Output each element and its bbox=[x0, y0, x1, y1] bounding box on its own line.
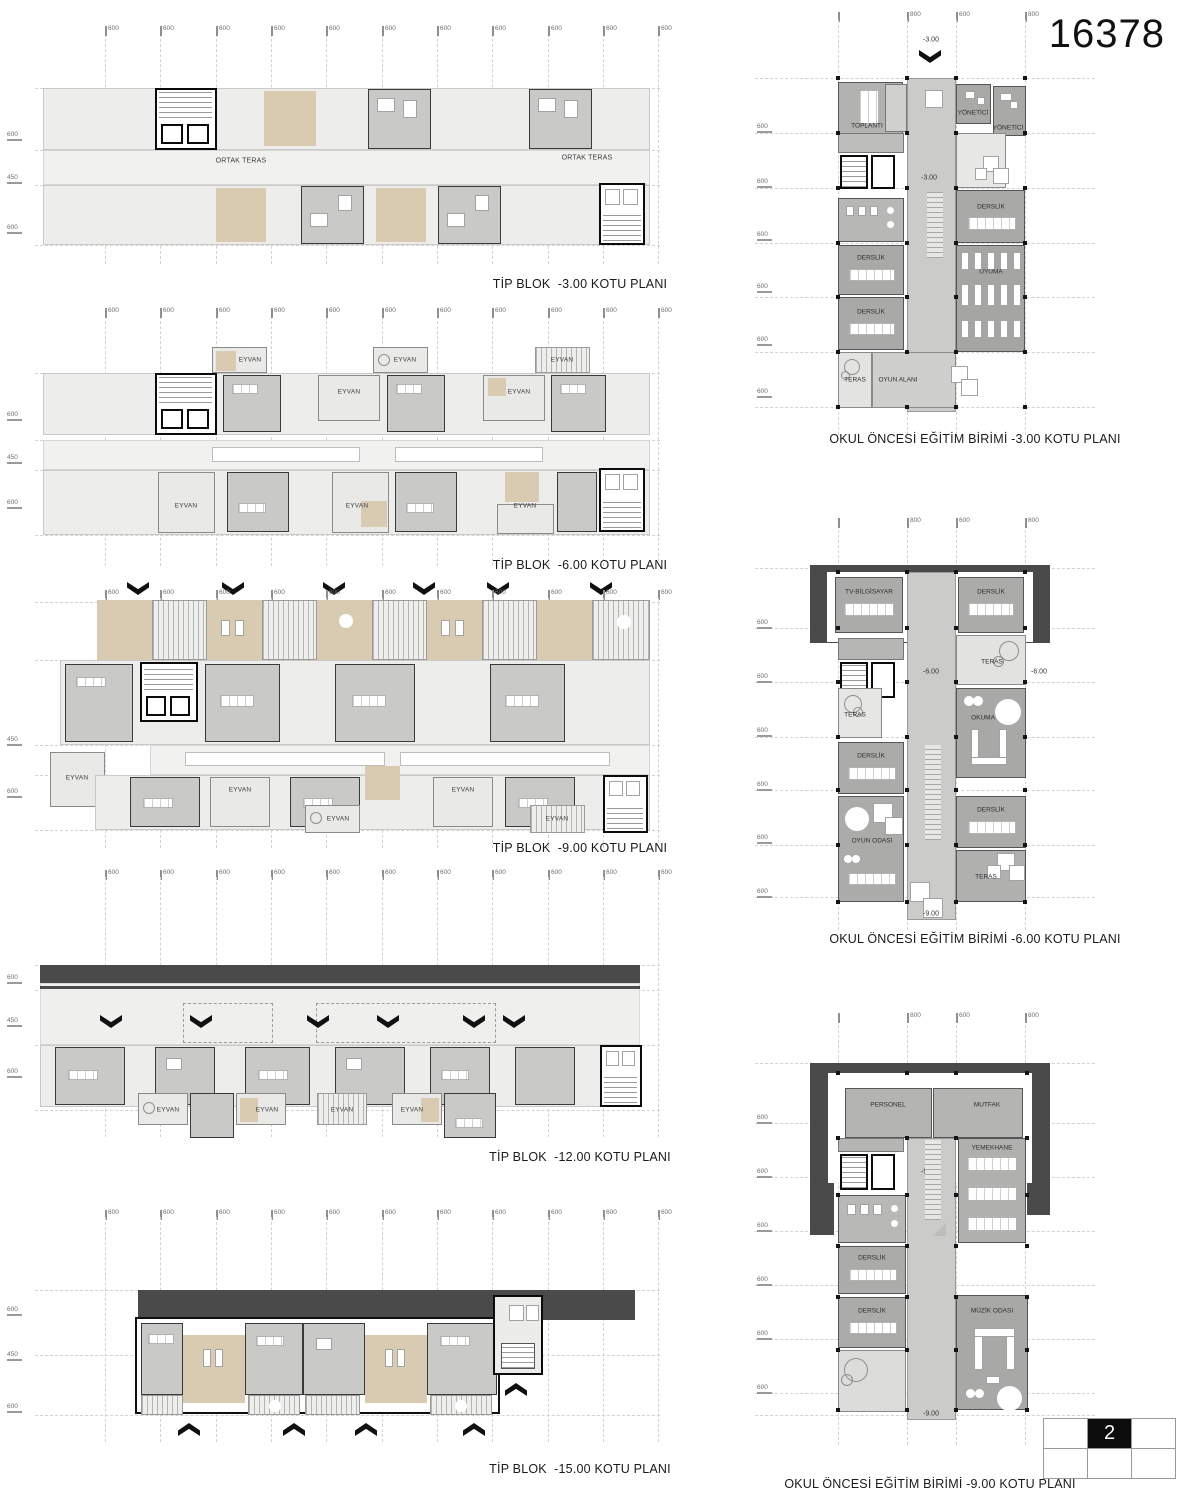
roof-terrace bbox=[97, 600, 152, 660]
dimension-label: 600 bbox=[606, 25, 617, 32]
plan-tip-blok-15: 600600600600600600600600600600600 600450… bbox=[35, 1205, 660, 1500]
dimension-label: 600 bbox=[163, 307, 174, 314]
dimension-tick bbox=[382, 26, 384, 36]
dimension-tick bbox=[492, 26, 494, 36]
elevator bbox=[161, 124, 183, 144]
dimension-label: 600 bbox=[219, 589, 230, 596]
column-marker bbox=[1023, 626, 1027, 630]
direction-arrow-up bbox=[355, 1423, 377, 1436]
column-marker bbox=[1023, 76, 1027, 80]
dimension-label: 600 bbox=[7, 224, 22, 234]
column-marker bbox=[905, 1244, 909, 1248]
page-index-cell bbox=[1043, 1448, 1088, 1479]
eyvan-room bbox=[483, 375, 545, 421]
column-marker bbox=[954, 626, 958, 630]
eyvan-room bbox=[318, 375, 380, 421]
dimension-label: 600 bbox=[551, 589, 562, 596]
side-dimensions: 600450600 bbox=[7, 865, 33, 1165]
plan-okul-3: 800600800 600600600600600600 -3.00 TOPLA… bbox=[755, 0, 1095, 470]
dimension-label: 600 bbox=[274, 25, 285, 32]
dimension-tick bbox=[160, 308, 162, 318]
terrace-band bbox=[43, 150, 650, 185]
column-marker bbox=[1023, 350, 1027, 354]
dimension-tick bbox=[437, 26, 439, 36]
roof-hatch bbox=[262, 600, 317, 660]
column-marker bbox=[1025, 1348, 1029, 1352]
column-marker bbox=[836, 1193, 840, 1197]
dimension-tick bbox=[548, 308, 550, 318]
dimension-label: 600 bbox=[329, 25, 340, 32]
roof-hatch bbox=[372, 600, 427, 660]
drawing-sheet: 16378 600600600600600600600600600600600 … bbox=[0, 0, 1191, 1500]
column-marker bbox=[905, 1348, 909, 1352]
column-marker bbox=[836, 626, 840, 630]
column-marker bbox=[1023, 186, 1027, 190]
dimension-row: 600600600600600600600600600600600 bbox=[35, 26, 660, 38]
column-marker bbox=[905, 735, 909, 739]
elevator bbox=[187, 124, 209, 144]
grid-line-horizontal bbox=[35, 535, 660, 536]
dimension-label: 600 bbox=[7, 788, 22, 798]
room-label: EYVAN bbox=[229, 787, 252, 794]
eyvan-room bbox=[210, 777, 270, 827]
unit-cluster bbox=[551, 375, 606, 432]
stair-core bbox=[599, 468, 645, 532]
column-marker bbox=[1023, 405, 1027, 409]
dimension-label: 600 bbox=[108, 307, 119, 314]
column-marker bbox=[954, 1071, 958, 1075]
dimension-tick bbox=[603, 26, 605, 36]
side-dimensions: 600450600 bbox=[7, 300, 33, 580]
grid-line-horizontal bbox=[35, 245, 660, 246]
column-marker bbox=[836, 405, 840, 409]
dimension-label: 450 bbox=[7, 1017, 22, 1027]
plan-title: OKUL ÖNCESİ EĞİTİM BİRİMİ -9.00 KOTU PLA… bbox=[784, 1477, 1075, 1491]
corridor-opening bbox=[400, 752, 610, 766]
plan-tip-blok-12: 600600600600600600600600600600600 600450… bbox=[35, 865, 660, 1165]
dimension-label: 600 bbox=[551, 25, 562, 32]
direction-arrow-down bbox=[190, 1015, 212, 1028]
column-marker bbox=[836, 241, 840, 245]
direction-arrow-down bbox=[463, 1015, 485, 1028]
column-marker bbox=[1023, 680, 1027, 684]
column-marker bbox=[1023, 570, 1027, 574]
direction-arrow-up bbox=[283, 1423, 305, 1436]
column-marker bbox=[905, 131, 909, 135]
column-marker bbox=[954, 680, 958, 684]
grid-line-vertical bbox=[658, 316, 659, 566]
stair-core bbox=[603, 775, 648, 833]
column-marker bbox=[836, 350, 840, 354]
dimension-label: 600 bbox=[606, 307, 617, 314]
unit-cluster bbox=[65, 664, 133, 742]
column-marker bbox=[836, 76, 840, 80]
column-marker bbox=[905, 788, 909, 792]
dimension-tick bbox=[658, 26, 660, 36]
column-marker bbox=[954, 131, 958, 135]
plan-title: OKUL ÖNCESİ EĞİTİM BİRİMİ -3.00 KOTU PLA… bbox=[829, 432, 1120, 446]
dimension-label: 600 bbox=[7, 1403, 22, 1413]
room-label: ORTAK TERAS bbox=[562, 155, 613, 162]
column-marker bbox=[954, 350, 958, 354]
column-marker bbox=[836, 295, 840, 299]
room-label: EYVAN bbox=[175, 503, 198, 510]
column-marker bbox=[905, 1193, 909, 1197]
unit-cluster bbox=[205, 664, 280, 742]
column-marker bbox=[836, 570, 840, 574]
dimension-tick bbox=[105, 26, 107, 36]
column-marker bbox=[905, 626, 909, 630]
page-index-cell-current: 2 bbox=[1087, 1418, 1132, 1449]
stair-core bbox=[155, 88, 217, 150]
side-dimensions: 600450600 bbox=[7, 1205, 33, 1500]
dimension-label: 450 bbox=[7, 736, 22, 746]
plan-title: TİP BLOK -9.00 KOTU PLANI bbox=[493, 841, 667, 855]
column-marker bbox=[836, 788, 840, 792]
room-label: EYVAN bbox=[394, 357, 417, 364]
stairs bbox=[159, 92, 212, 118]
room-label: EYVAN bbox=[452, 787, 475, 794]
column-marker bbox=[836, 1071, 840, 1075]
plan-title: TİP BLOK -15.00 KOTU PLANI bbox=[489, 1462, 671, 1476]
dimension-label: 600 bbox=[108, 25, 119, 32]
column-marker bbox=[905, 1071, 909, 1075]
unit-room bbox=[444, 1093, 496, 1138]
side-dimensions: 450600 bbox=[7, 580, 33, 880]
column-markers bbox=[755, 0, 1095, 470]
courtyard bbox=[216, 188, 266, 242]
grid-line-vertical bbox=[658, 598, 659, 848]
column-marker bbox=[954, 76, 958, 80]
page-index-cell bbox=[1131, 1448, 1176, 1479]
column-marker bbox=[905, 843, 909, 847]
room-label: EYVAN bbox=[66, 775, 89, 782]
room-label: EYVAN bbox=[338, 389, 361, 396]
room-label: EYVAN bbox=[157, 1107, 180, 1114]
eyvan-room bbox=[433, 777, 493, 827]
column-marker bbox=[954, 1244, 958, 1248]
grid-line-vertical bbox=[658, 34, 659, 264]
column-marker bbox=[954, 735, 958, 739]
column-marker bbox=[836, 1295, 840, 1299]
dimension-label: 600 bbox=[661, 1209, 672, 1216]
column-marker bbox=[954, 1408, 958, 1412]
unit-cluster bbox=[227, 472, 289, 532]
direction-arrow-up bbox=[178, 1423, 200, 1436]
column-marker bbox=[954, 900, 958, 904]
plan-tip-blok-3: 600600600600600600600600600600600 600450… bbox=[35, 20, 660, 285]
column-marker bbox=[836, 843, 840, 847]
dimension-tick bbox=[271, 308, 273, 318]
direction-arrow-down bbox=[377, 1015, 399, 1028]
plan-title: TİP BLOK -12.00 KOTU PLANI bbox=[489, 1150, 671, 1164]
dimension-label: 600 bbox=[661, 589, 672, 596]
column-marker bbox=[954, 1193, 958, 1197]
column-marker bbox=[1023, 131, 1027, 135]
unit-cluster bbox=[368, 89, 431, 149]
dimension-tick bbox=[271, 26, 273, 36]
dimension-label: 600 bbox=[440, 307, 451, 314]
dimension-tick bbox=[437, 308, 439, 318]
stair-core bbox=[600, 1045, 642, 1107]
column-marker bbox=[954, 241, 958, 245]
column-markers bbox=[755, 510, 1095, 950]
dimension-tick bbox=[658, 308, 660, 318]
dimension-tick bbox=[326, 308, 328, 318]
column-marker bbox=[954, 1136, 958, 1140]
dimension-label: 600 bbox=[385, 307, 396, 314]
column-marker bbox=[954, 1348, 958, 1352]
dimension-label: 600 bbox=[495, 307, 506, 314]
corridor-opening bbox=[185, 752, 385, 766]
dimension-label: 600 bbox=[274, 307, 285, 314]
column-marker bbox=[905, 900, 909, 904]
column-marker bbox=[836, 131, 840, 135]
column-marker bbox=[1023, 788, 1027, 792]
courtyard bbox=[264, 91, 316, 146]
room-label: EYVAN bbox=[346, 503, 369, 510]
room-label: EYVAN bbox=[514, 503, 537, 510]
column-marker bbox=[1023, 295, 1027, 299]
column-marker bbox=[1025, 1244, 1029, 1248]
column-marker bbox=[836, 1348, 840, 1352]
dimension-tick bbox=[548, 26, 550, 36]
column-marker bbox=[1025, 1071, 1029, 1075]
column-marker bbox=[905, 405, 909, 409]
column-marker bbox=[1023, 900, 1027, 904]
stair-core bbox=[155, 373, 217, 435]
column-marker bbox=[954, 405, 958, 409]
direction-arrow-down bbox=[100, 1015, 122, 1028]
dimension-label: 600 bbox=[495, 589, 506, 596]
corridor-opening bbox=[212, 447, 360, 462]
direction-arrow-down bbox=[503, 1015, 525, 1028]
roof-terrace bbox=[537, 600, 592, 660]
dimension-tick bbox=[492, 308, 494, 318]
room-label: EYVAN bbox=[551, 357, 574, 364]
column-marker bbox=[905, 680, 909, 684]
dimension-label: 600 bbox=[440, 589, 451, 596]
dimension-label: 600 bbox=[329, 589, 340, 596]
dimension-label: 600 bbox=[551, 307, 562, 314]
plan-tip-blok-9: 600600600600600600600600600600600 450600… bbox=[35, 580, 660, 880]
column-marker bbox=[905, 186, 909, 190]
dimension-tick bbox=[105, 308, 107, 318]
column-marker bbox=[1025, 1193, 1029, 1197]
column-marker bbox=[905, 350, 909, 354]
dimension-tick bbox=[216, 308, 218, 318]
dimension-label: 600 bbox=[108, 589, 119, 596]
dimension-tick bbox=[326, 26, 328, 36]
unit-cluster bbox=[515, 1047, 575, 1105]
stairs bbox=[603, 215, 641, 241]
column-marker bbox=[954, 788, 958, 792]
plan-title: TİP BLOK -6.00 KOTU PLANI bbox=[493, 558, 667, 572]
dimension-label: 600 bbox=[440, 25, 451, 32]
roof-hatch bbox=[152, 600, 207, 660]
dimension-label: 600 bbox=[661, 869, 672, 876]
dimension-label: 600 bbox=[274, 589, 285, 596]
page-index-cell bbox=[1043, 1418, 1088, 1449]
courtyard bbox=[365, 766, 400, 800]
column-marker bbox=[905, 1408, 909, 1412]
column-marker bbox=[836, 1136, 840, 1140]
column-marker bbox=[905, 295, 909, 299]
column-marker bbox=[1025, 1136, 1029, 1140]
room-label: EYVAN bbox=[331, 1107, 354, 1114]
dimension-label: 600 bbox=[385, 25, 396, 32]
roof-terrace bbox=[427, 600, 482, 660]
side-dimensions: 600450600 bbox=[7, 20, 33, 285]
plan-title: TİP BLOK -3.00 KOTU PLANI bbox=[493, 277, 667, 291]
dimension-label: 600 bbox=[7, 411, 22, 421]
stair-core bbox=[140, 662, 198, 722]
column-marker bbox=[905, 1295, 909, 1299]
dimension-tick bbox=[382, 308, 384, 318]
dimension-label: 600 bbox=[7, 1306, 22, 1316]
room-label: ORTAK TERAS bbox=[216, 158, 267, 165]
roof-terrace bbox=[317, 600, 372, 660]
column-marker bbox=[905, 241, 909, 245]
column-marker bbox=[836, 900, 840, 904]
dimension-label: 600 bbox=[329, 307, 340, 314]
dimension-label: 450 bbox=[7, 174, 22, 184]
column-marker bbox=[836, 680, 840, 684]
unit-cluster bbox=[130, 777, 200, 827]
column-marker bbox=[954, 1295, 958, 1299]
direction-arrow-down bbox=[307, 1015, 329, 1028]
column-marker bbox=[1025, 1295, 1029, 1299]
dimension-tick bbox=[160, 26, 162, 36]
courtyard bbox=[376, 188, 426, 242]
room-label: EYVAN bbox=[256, 1107, 279, 1114]
unit-cluster bbox=[301, 186, 364, 244]
dimension-label: 600 bbox=[163, 25, 174, 32]
column-marker bbox=[905, 76, 909, 80]
column-marker bbox=[954, 843, 958, 847]
roof-hatch bbox=[482, 600, 537, 660]
page-index-cell bbox=[1087, 1448, 1132, 1479]
arrow-row bbox=[35, 1205, 660, 1500]
unit-cluster bbox=[55, 1047, 125, 1105]
plan-title: OKUL ÖNCESİ EĞİTİM BİRİMİ -6.00 KOTU PLA… bbox=[829, 932, 1120, 946]
roof-hatch bbox=[592, 600, 650, 660]
dimension-label: 600 bbox=[7, 974, 22, 984]
dimension-label: 600 bbox=[606, 589, 617, 596]
column-marker bbox=[954, 295, 958, 299]
room-label: EYVAN bbox=[327, 816, 350, 823]
page-index-cell bbox=[1131, 1418, 1176, 1449]
room-label: EYVAN bbox=[401, 1107, 424, 1114]
column-marker bbox=[836, 735, 840, 739]
column-marker bbox=[836, 186, 840, 190]
direction-arrow-up bbox=[463, 1423, 485, 1436]
room-label: EYVAN bbox=[546, 816, 569, 823]
plan-tip-blok-6: 600600600600600600600600600600600 600450… bbox=[35, 300, 660, 580]
column-marker bbox=[1023, 735, 1027, 739]
dimension-label: 600 bbox=[661, 307, 672, 314]
column-marker bbox=[836, 1244, 840, 1248]
roof-terrace bbox=[207, 600, 262, 660]
stair-core bbox=[599, 183, 645, 245]
dimension-label: 600 bbox=[661, 25, 672, 32]
unit-cluster bbox=[223, 375, 281, 432]
unit-cluster bbox=[490, 664, 565, 742]
dimension-label: 600 bbox=[219, 25, 230, 32]
dimension-label: 600 bbox=[7, 1068, 22, 1078]
unit-room bbox=[190, 1093, 234, 1138]
dimension-tick bbox=[216, 26, 218, 36]
unit-cluster bbox=[529, 89, 592, 149]
unit-cluster bbox=[557, 472, 597, 532]
page-index-grid: 2 bbox=[1043, 1418, 1175, 1479]
courtyard bbox=[505, 472, 539, 502]
dimension-label: 600 bbox=[163, 589, 174, 596]
column-marker bbox=[905, 1136, 909, 1140]
dimension-label: 600 bbox=[7, 131, 22, 141]
column-marker bbox=[1023, 843, 1027, 847]
column-marker bbox=[1025, 1408, 1029, 1412]
room-label: EYVAN bbox=[239, 357, 262, 364]
unit-cluster bbox=[387, 375, 445, 432]
unit-cluster bbox=[335, 664, 415, 742]
column-marker bbox=[836, 1408, 840, 1412]
dimension-label: 450 bbox=[7, 1351, 22, 1361]
corridor-opening bbox=[395, 447, 543, 462]
room-label: EYVAN bbox=[508, 389, 531, 396]
dimension-label: 600 bbox=[219, 307, 230, 314]
plan-okul-6: 800600800 600600600600600600 TV-BİLGİSAY… bbox=[755, 510, 1095, 950]
dimension-tick bbox=[603, 308, 605, 318]
column-marker bbox=[905, 570, 909, 574]
dimension-row: 600600600600600600600600600600600 bbox=[35, 308, 660, 320]
dimension-label: 450 bbox=[7, 454, 22, 464]
column-marker bbox=[1023, 241, 1027, 245]
column-marker bbox=[954, 570, 958, 574]
dimension-label: 600 bbox=[385, 589, 396, 596]
dimension-label: 600 bbox=[495, 25, 506, 32]
column-marker bbox=[954, 186, 958, 190]
unit-cluster bbox=[438, 186, 501, 244]
dimension-label: 600 bbox=[7, 499, 22, 509]
unit-cluster bbox=[395, 472, 457, 532]
